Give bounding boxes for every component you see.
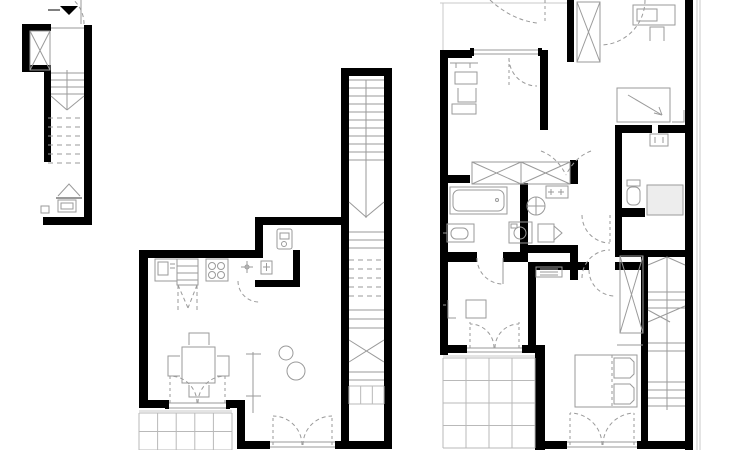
door-swing — [582, 250, 610, 278]
desk — [455, 72, 477, 84]
wall — [615, 208, 645, 217]
wall — [440, 345, 467, 353]
sink — [650, 134, 668, 146]
wall — [658, 125, 693, 133]
overhead-dash — [188, 285, 197, 308]
jamb — [470, 48, 474, 56]
stair-wall — [341, 68, 349, 449]
wall — [139, 400, 167, 408]
door-swing — [589, 270, 615, 296]
pillow — [614, 384, 634, 404]
desk-top — [637, 9, 657, 21]
door-swing — [541, 151, 566, 175]
winder — [67, 96, 84, 110]
door-swing — [477, 258, 503, 284]
wall — [22, 24, 51, 31]
wall — [528, 262, 536, 353]
burner — [218, 263, 225, 270]
landing-tiles — [349, 386, 384, 404]
wall — [545, 441, 567, 449]
stair-core-plan — [22, 0, 92, 225]
lower-floor-plan — [139, 68, 392, 450]
wall — [440, 252, 477, 262]
terrace-tiles — [443, 358, 535, 448]
washbasin-bowl — [451, 228, 468, 239]
washing-machine-panel — [511, 224, 517, 228]
door-swing — [582, 215, 610, 243]
door-swing — [509, 58, 537, 86]
wall — [440, 175, 470, 183]
bathtub-inner — [453, 190, 504, 211]
overhead-dash — [178, 285, 188, 308]
winder — [349, 202, 366, 217]
floor-plan-drawing — [0, 0, 738, 450]
floor-plan-canvas — [0, 0, 738, 450]
winder — [667, 257, 685, 265]
entry-arrow — [60, 6, 78, 15]
kitchen-tall-unit — [177, 259, 198, 285]
sink-basin — [61, 203, 73, 209]
burner — [209, 272, 216, 279]
wall — [567, 0, 574, 62]
wall — [237, 441, 270, 449]
plant — [279, 346, 293, 360]
chair — [168, 356, 180, 376]
double-bed — [575, 355, 637, 407]
stair-arrow — [58, 184, 80, 196]
chair — [458, 88, 476, 102]
wall — [43, 217, 92, 225]
wall — [540, 50, 548, 130]
wall — [617, 125, 652, 133]
chair — [217, 356, 229, 376]
boiler-dial — [282, 242, 287, 247]
door-swing — [303, 416, 332, 445]
floor-drain — [41, 206, 49, 213]
dining-table — [182, 347, 215, 383]
pillow — [614, 358, 634, 378]
winder — [51, 96, 67, 110]
table — [466, 300, 486, 318]
shower — [647, 185, 683, 215]
wall — [258, 217, 349, 225]
cabinet — [452, 104, 476, 114]
door-swing — [600, 0, 645, 45]
burner — [218, 272, 225, 279]
nightstand — [672, 110, 684, 122]
door-swing — [273, 416, 302, 445]
boiler-panel — [280, 233, 289, 239]
pantry-wall — [255, 280, 300, 287]
outer-wall — [440, 50, 448, 355]
winder — [648, 257, 667, 265]
outer-wall — [384, 68, 392, 449]
outer-wall — [685, 0, 693, 450]
balcony-tiles — [139, 413, 232, 450]
plant — [287, 362, 305, 380]
winder — [366, 202, 384, 217]
upper-floor-plan — [440, 0, 700, 450]
toilet-cistern — [627, 180, 640, 186]
bed-arrow — [628, 95, 662, 115]
kitchen-sink-basin — [158, 262, 168, 275]
chair — [448, 300, 456, 318]
bathtub-drain — [496, 199, 499, 202]
wall — [535, 345, 545, 450]
wall — [615, 262, 641, 270]
outer-wall — [139, 250, 148, 408]
jamb — [538, 48, 542, 56]
door-swing — [603, 413, 634, 445]
wall — [335, 441, 392, 449]
toilet-lid — [554, 226, 562, 240]
bed — [617, 88, 670, 122]
burner — [209, 263, 216, 270]
toilet-bowl — [627, 187, 640, 205]
wall — [528, 245, 570, 253]
wall — [522, 345, 535, 353]
toilet — [538, 224, 554, 242]
door-swing — [570, 413, 602, 445]
wall — [528, 262, 589, 270]
wall — [44, 65, 51, 162]
stair-wall — [641, 253, 648, 449]
kitchen-wall — [139, 250, 263, 258]
chair — [650, 27, 664, 41]
wall — [22, 24, 30, 72]
jamb — [165, 400, 169, 409]
door-swing — [198, 376, 225, 403]
chair — [189, 333, 209, 345]
wall — [615, 125, 622, 257]
door-swing — [470, 324, 494, 348]
door-swing — [495, 324, 519, 348]
wall — [503, 252, 528, 262]
wall — [84, 25, 92, 225]
jamb — [226, 400, 230, 409]
wall — [648, 441, 693, 449]
door-swing — [170, 376, 197, 403]
